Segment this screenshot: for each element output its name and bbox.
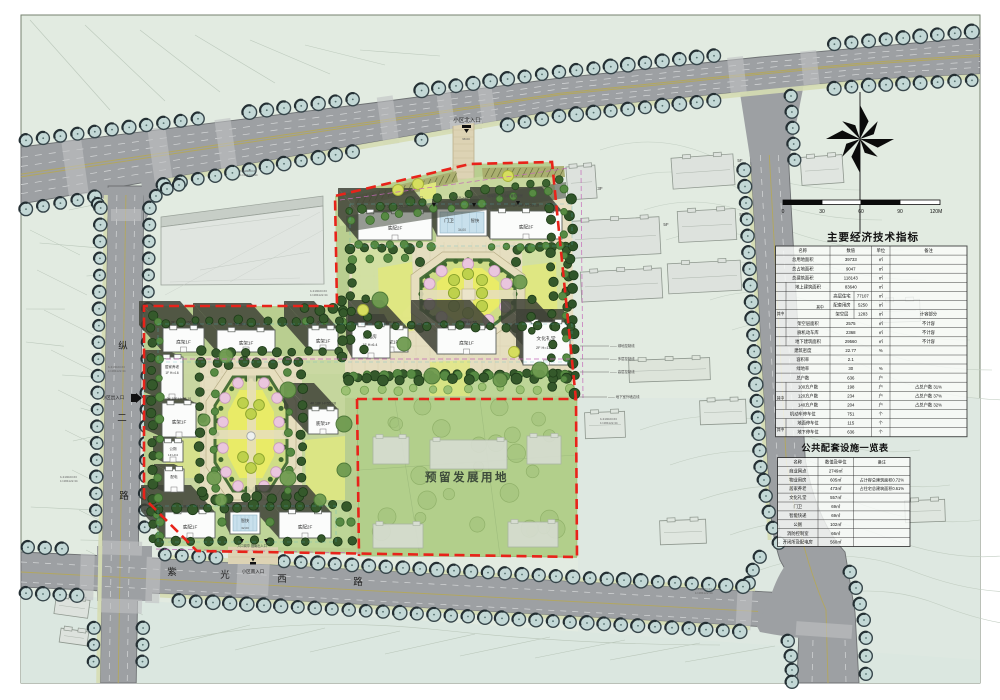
svg-text:数值及单位: 数值及单位 <box>825 459 847 466</box>
svg-text:底配2F: 底配2F <box>298 524 313 531</box>
svg-text:㎡: ㎡ <box>879 311 884 317</box>
svg-text:32.00: 32.00 <box>241 526 249 530</box>
svg-text:文化礼堂: 文化礼堂 <box>789 494 807 501</box>
svg-text:㎡: ㎡ <box>879 265 884 271</box>
svg-text:605㎡: 605㎡ <box>830 476 842 482</box>
svg-text:560㎡: 560㎡ <box>830 539 842 545</box>
svg-text:1283: 1283 <box>858 312 868 317</box>
svg-text:5F: 5F <box>737 158 743 163</box>
svg-text:消防控制室: 消防控制室 <box>787 530 809 537</box>
svg-text:0: 0 <box>782 209 785 215</box>
svg-text:1=484122.34: 1=484122.34 <box>240 173 258 177</box>
svg-text:㎡: ㎡ <box>879 293 884 299</box>
svg-text:1=484122.34: 1=484122.34 <box>695 591 713 595</box>
svg-text:计容部分: 计容部分 <box>920 311 938 318</box>
svg-text:总户数: 总户数 <box>796 374 810 381</box>
svg-text:底架1F: 底架1F <box>172 419 187 426</box>
svg-text:配套用房: 配套用房 <box>833 302 850 309</box>
svg-text:占总户数 31%: 占总户数 31% <box>915 383 942 390</box>
svg-text:30: 30 <box>848 366 853 371</box>
svg-text:39733: 39733 <box>845 257 858 262</box>
svg-text:户: 户 <box>879 392 883 399</box>
svg-text:234: 234 <box>847 393 855 398</box>
svg-text:—— 多层控制线: —— 多层控制线 <box>610 356 635 361</box>
svg-text:69㎡: 69㎡ <box>831 503 841 509</box>
svg-text:3F: 3F <box>597 186 603 191</box>
svg-text:其中: 其中 <box>816 305 824 310</box>
svg-text:不计容: 不计容 <box>922 329 936 336</box>
svg-text:底架1F: 底架1F <box>316 420 331 427</box>
svg-text:占计容总建筑面积0.72%: 占计容总建筑面积0.72% <box>860 476 905 482</box>
svg-text:居家养老: 居家养老 <box>789 485 807 492</box>
svg-text:66㎡: 66㎡ <box>831 530 841 536</box>
svg-text:1=484122.34: 1=484122.34 <box>310 293 328 297</box>
svg-text:㎡: ㎡ <box>879 284 884 290</box>
svg-text:22.77: 22.77 <box>845 348 856 353</box>
svg-text:地库出入口: 地库出入口 <box>407 195 423 200</box>
svg-text:物业用房: 物业用房 <box>789 476 806 483</box>
svg-text:㎡: ㎡ <box>879 274 884 280</box>
svg-text:备注: 备注 <box>924 247 933 254</box>
svg-text:㎡: ㎡ <box>879 329 884 335</box>
svg-text:总建筑面积: 总建筑面积 <box>792 274 814 281</box>
svg-text:636: 636 <box>847 430 855 435</box>
svg-text:门卫: 门卫 <box>444 217 454 224</box>
svg-text:紫: 紫 <box>167 567 177 578</box>
svg-text:不计容: 不计容 <box>922 338 936 345</box>
svg-text:地下停车位: 地下停车位 <box>797 429 819 436</box>
svg-text:机动车停车位: 机动车停车位 <box>790 411 816 418</box>
svg-text:小区北入口: 小区北入口 <box>453 116 481 124</box>
svg-text:占住宅总建筑面积0.61%: 占住宅总建筑面积0.61% <box>860 485 905 491</box>
svg-text:总占地面积: 总占地面积 <box>792 265 814 272</box>
svg-text:4# 18F H=55.10: 4# 18F H=55.10 <box>310 402 336 406</box>
svg-text:智能快递: 智能快递 <box>789 512 807 519</box>
svg-text:底配2F: 底配2F <box>388 225 403 232</box>
svg-text:㎡: ㎡ <box>879 302 884 308</box>
svg-text:557㎡: 557㎡ <box>830 494 842 500</box>
svg-text:㎡: ㎡ <box>879 320 884 326</box>
svg-text:83640: 83640 <box>845 285 858 290</box>
svg-text:户: 户 <box>879 374 883 381</box>
svg-text:底配2F: 底配2F <box>519 224 534 231</box>
svg-text:636: 636 <box>847 375 855 380</box>
svg-text:居家养老: 居家养老 <box>165 364 180 369</box>
svg-text:地上建筑面积: 地上建筑面积 <box>795 284 821 291</box>
svg-text:5250: 5250 <box>858 303 868 308</box>
svg-text:2368: 2368 <box>846 330 856 335</box>
svg-text:商业网点: 商业网点 <box>789 468 807 475</box>
svg-text:主要经济技术指标: 主要经济技术指标 <box>827 231 919 244</box>
svg-text:2.1: 2.1 <box>848 357 855 362</box>
svg-text:地下建筑面积: 地下建筑面积 <box>795 338 821 345</box>
svg-text:100方户数: 100方户数 <box>798 383 819 390</box>
svg-text:地面停车位: 地面停车位 <box>797 420 819 427</box>
svg-text:%: % <box>879 348 883 353</box>
svg-text:34.00: 34.00 <box>458 228 466 232</box>
svg-text:底架1F: 底架1F <box>239 340 254 347</box>
svg-text:户: 户 <box>879 402 883 409</box>
svg-text:入口岗亭 指南出入口: 入口岗亭 指南出入口 <box>237 543 267 548</box>
svg-text:1F H=4.6: 1F H=4.6 <box>165 371 178 375</box>
svg-text:2575: 2575 <box>846 321 856 326</box>
svg-text:小区出入口: 小区出入口 <box>102 394 125 401</box>
svg-text:备注: 备注 <box>878 459 886 465</box>
svg-text:98.00: 98.00 <box>462 137 470 141</box>
svg-text:底架1F: 底架1F <box>176 339 191 346</box>
svg-text:开闭所及配电房: 开闭所及配电房 <box>783 539 813 546</box>
svg-text:69㎡: 69㎡ <box>831 512 841 518</box>
svg-text:个: 个 <box>879 430 884 435</box>
svg-text:户: 户 <box>879 383 883 390</box>
svg-text:1=484122.34: 1=484122.34 <box>60 479 78 483</box>
svg-text:总用地面积: 总用地面积 <box>792 256 814 263</box>
svg-text:智快: 智快 <box>471 217 480 224</box>
svg-text:二: 二 <box>117 413 127 424</box>
svg-text:—— 高层控制线: —— 高层控制线 <box>610 369 635 374</box>
svg-text:路: 路 <box>353 576 363 588</box>
svg-text:高层住宅: 高层住宅 <box>833 293 851 300</box>
svg-text:30: 30 <box>819 209 825 215</box>
svg-text:%: % <box>879 366 883 371</box>
svg-text:2749㎡: 2749㎡ <box>829 468 844 474</box>
svg-text:102㎡: 102㎡ <box>830 521 842 527</box>
svg-text:底架1F: 底架1F <box>459 340 474 347</box>
svg-text:204: 204 <box>847 403 855 408</box>
svg-text:地库出入口 小区管理用房: 地库出入口 小区管理用房 <box>487 193 523 198</box>
svg-text:容积率: 容积率 <box>796 356 810 363</box>
svg-text:1F H=4: 1F H=4 <box>168 453 178 457</box>
svg-text:㎡: ㎡ <box>879 338 884 344</box>
svg-text:智快: 智快 <box>241 517 249 523</box>
svg-text:人行出入口: 人行出入口 <box>452 195 468 200</box>
svg-text:1=484122.34: 1=484122.34 <box>108 369 126 373</box>
svg-text:120方户数: 120方户数 <box>798 392 819 399</box>
svg-text:其中: 其中 <box>777 311 785 316</box>
svg-text:㎡: ㎡ <box>879 256 884 262</box>
svg-text:60: 60 <box>858 209 864 215</box>
svg-text:其中: 其中 <box>777 396 785 401</box>
svg-text:配电: 配电 <box>170 474 178 479</box>
svg-text:115: 115 <box>847 421 854 426</box>
svg-text:架空层: 架空层 <box>836 311 850 318</box>
svg-text:占总户数 37%: 占总户数 37% <box>915 392 942 399</box>
svg-text:廊机动车库: 廊机动车库 <box>797 329 819 336</box>
svg-text:90: 90 <box>897 209 903 215</box>
svg-text:198: 198 <box>847 384 855 389</box>
svg-text:5F: 5F <box>663 222 669 227</box>
svg-text:751: 751 <box>847 412 855 417</box>
svg-text:单位: 单位 <box>877 247 886 254</box>
svg-text:底架1F: 底架1F <box>316 338 331 345</box>
svg-text:绿地率: 绿地率 <box>796 365 810 372</box>
svg-text:—— 地下室外墙边线: —— 地下室外墙边线 <box>608 394 640 399</box>
svg-text:1=484122.34: 1=484122.34 <box>600 421 618 425</box>
svg-text:29560: 29560 <box>845 339 858 344</box>
svg-text:占总户数 32%: 占总户数 32% <box>915 402 942 409</box>
svg-text:9047: 9047 <box>846 266 856 271</box>
svg-text:门卫: 门卫 <box>794 503 803 510</box>
svg-text:纵: 纵 <box>118 341 128 352</box>
svg-text:473㎡: 473㎡ <box>830 485 842 491</box>
svg-text:120M: 120M <box>930 209 943 215</box>
svg-text:77107: 77107 <box>857 294 870 299</box>
svg-text:架空层面积: 架空层面积 <box>797 320 819 327</box>
svg-text:不计容: 不计容 <box>922 320 936 327</box>
svg-text:预留发展用地: 预留发展用地 <box>425 470 509 484</box>
svg-text:118143: 118143 <box>844 275 859 280</box>
svg-text:光: 光 <box>220 569 230 581</box>
svg-text:公共配套设施一览表: 公共配套设施一览表 <box>801 442 888 453</box>
svg-text:西: 西 <box>277 574 287 585</box>
svg-text:公厕: 公厕 <box>169 446 177 451</box>
svg-text:名称: 名称 <box>799 247 808 254</box>
svg-text:底配1F: 底配1F <box>183 524 198 531</box>
svg-text:个: 个 <box>879 421 884 426</box>
svg-text:建筑密度: 建筑密度 <box>794 347 812 354</box>
svg-text:个: 个 <box>879 412 884 417</box>
svg-text:名称: 名称 <box>794 459 803 466</box>
svg-text:路: 路 <box>119 490 129 502</box>
svg-text:140方户数: 140方户数 <box>798 402 819 409</box>
svg-text:数值: 数值 <box>847 247 856 254</box>
svg-text:3# 18F H=55.10: 3# 18F H=55.10 <box>167 397 192 401</box>
svg-text:其中: 其中 <box>777 427 785 432</box>
svg-text:—— 绿地控制线: —— 绿地控制线 <box>610 343 635 348</box>
svg-text:小区南入口: 小区南入口 <box>242 568 265 575</box>
